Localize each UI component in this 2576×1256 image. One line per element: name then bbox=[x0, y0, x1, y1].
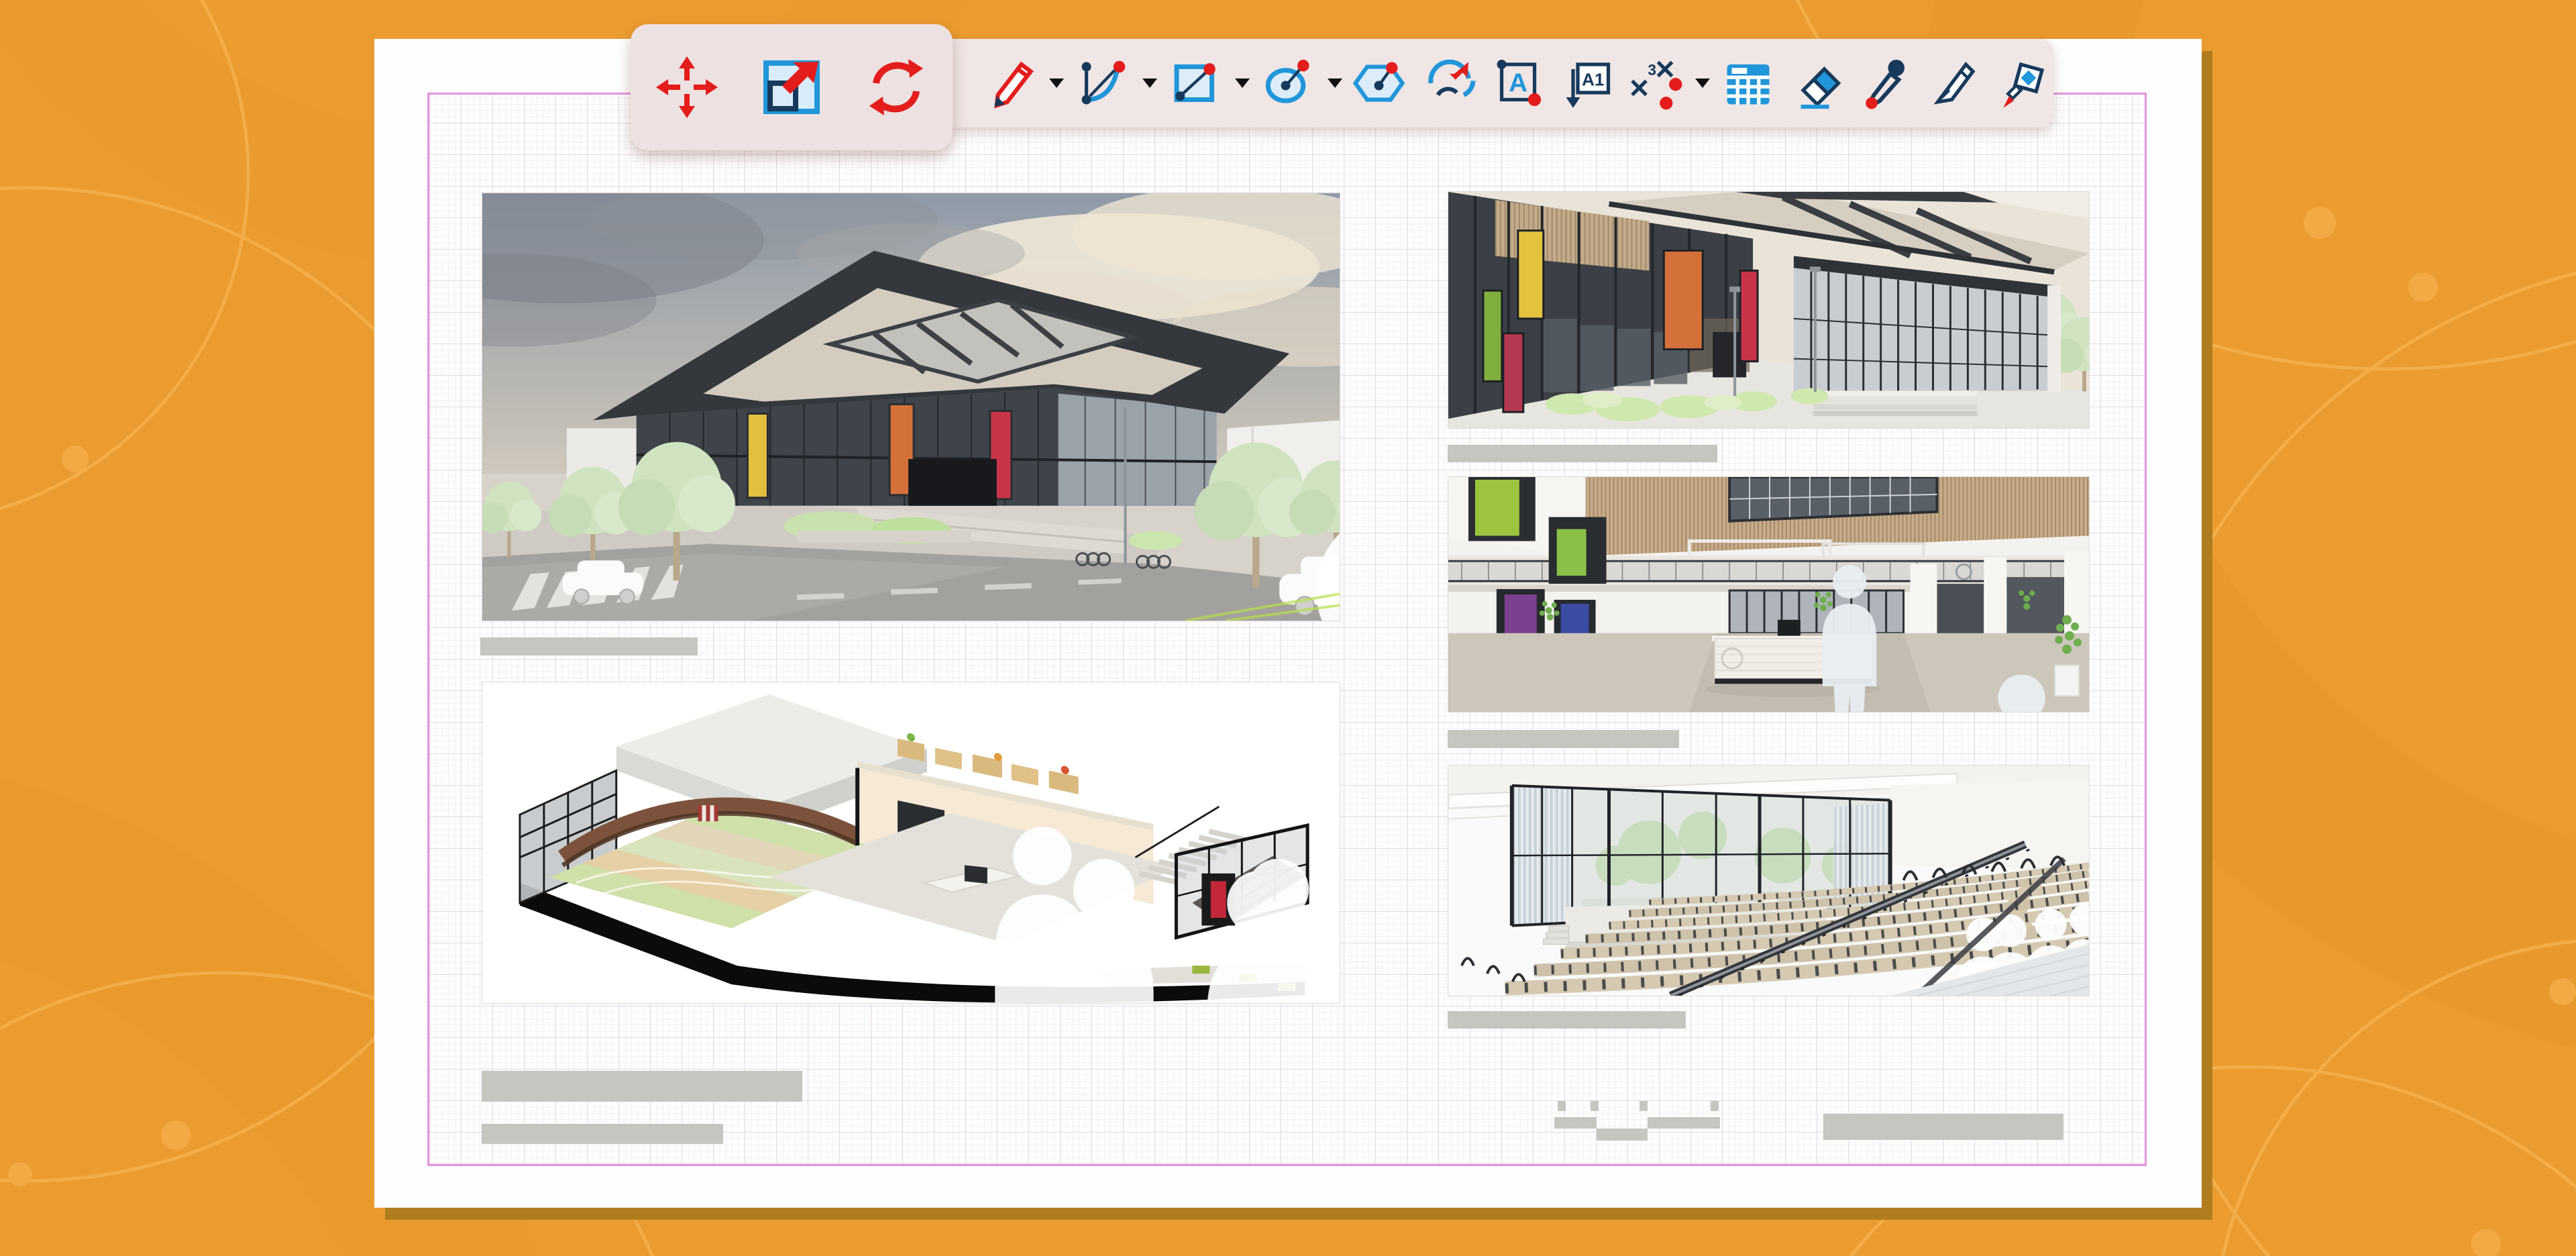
footer-text-bar[interactable] bbox=[1823, 1114, 2063, 1140]
text-icon: A bbox=[1490, 55, 1546, 111]
figure-exterior-street-render[interactable] bbox=[482, 193, 1340, 621]
ellipse-icon bbox=[1260, 55, 1316, 111]
dimension-dropdown-arrow[interactable] bbox=[1695, 78, 1710, 88]
figure-courtyard-render[interactable] bbox=[1448, 191, 2090, 429]
dimension-icon: 3 bbox=[1627, 55, 1684, 111]
caption-bar-auditorium[interactable] bbox=[1448, 1011, 1686, 1029]
figure-isometric-cutaway-render[interactable] bbox=[482, 682, 1340, 1004]
scale-segment-2 bbox=[1597, 1129, 1648, 1141]
move-icon bbox=[655, 55, 719, 119]
text-frame-tool-button[interactable]: A1 bbox=[1557, 48, 1617, 118]
move-tool-button[interactable] bbox=[651, 47, 723, 127]
desktop: A A1 3 bbox=[0, 0, 2576, 1256]
caption-bar-exterior[interactable] bbox=[480, 637, 698, 656]
polygon-icon bbox=[1353, 55, 1409, 111]
svg-text:A1: A1 bbox=[1582, 70, 1605, 90]
glue-icon bbox=[1995, 55, 2051, 111]
document-page bbox=[374, 39, 2202, 1208]
rectangle-icon bbox=[1167, 55, 1224, 111]
eraser-tool-button[interactable] bbox=[1787, 48, 1847, 118]
title-bar-primary[interactable] bbox=[482, 1071, 802, 1102]
pencil-tool-button[interactable] bbox=[979, 48, 1040, 118]
knife-icon bbox=[1926, 55, 1982, 111]
curve-icon bbox=[1075, 55, 1131, 111]
curve-dropdown-arrow[interactable] bbox=[1142, 78, 1157, 88]
figure-auditorium-render[interactable] bbox=[1448, 765, 2090, 996]
glue-tool-button[interactable] bbox=[1993, 48, 2053, 118]
svg-text:3: 3 bbox=[1648, 61, 1656, 78]
scale-segment-1 bbox=[1554, 1117, 1597, 1129]
text-tool-button[interactable]: A bbox=[1488, 48, 1548, 118]
resize-tool-button[interactable] bbox=[755, 47, 828, 127]
transform-toolbar-panel bbox=[631, 24, 953, 150]
scale-segment-3 bbox=[1648, 1117, 1720, 1129]
caption-bar-atrium[interactable] bbox=[1448, 730, 1679, 748]
table-tool-button[interactable] bbox=[1718, 48, 1778, 118]
resize-icon bbox=[759, 55, 824, 119]
scale-tick-2 bbox=[1591, 1101, 1599, 1111]
dimension-tool-button[interactable]: 3 bbox=[1625, 48, 1686, 118]
color-picker-tool-button[interactable] bbox=[1856, 48, 1916, 118]
arc-tool-button[interactable] bbox=[1419, 48, 1480, 118]
rotate-tool-button[interactable] bbox=[860, 47, 932, 127]
caption-bar-courtyard[interactable] bbox=[1448, 445, 1717, 462]
rectangle-dropdown-arrow[interactable] bbox=[1235, 78, 1250, 88]
scale-tick-4 bbox=[1711, 1101, 1719, 1111]
rectangle-tool-button[interactable] bbox=[1165, 48, 1226, 118]
arc-icon bbox=[1421, 55, 1478, 111]
table-icon bbox=[1720, 55, 1776, 111]
curve-tool-button[interactable] bbox=[1072, 48, 1132, 118]
scale-tick-3 bbox=[1640, 1101, 1648, 1111]
pencil-icon bbox=[981, 55, 1038, 111]
eraser-icon bbox=[1789, 55, 1845, 111]
svg-text:A: A bbox=[1509, 68, 1527, 97]
color-picker-icon bbox=[1858, 55, 1914, 111]
ellipse-tool-button[interactable] bbox=[1258, 48, 1318, 118]
text-frame-icon: A1 bbox=[1559, 55, 1615, 111]
ellipse-dropdown-arrow[interactable] bbox=[1328, 78, 1342, 88]
scale-tick-1 bbox=[1558, 1101, 1566, 1111]
knife-tool-button[interactable] bbox=[1924, 48, 1984, 118]
pencil-dropdown-arrow[interactable] bbox=[1049, 78, 1064, 88]
figure-atrium-render[interactable] bbox=[1448, 476, 2090, 713]
rotate-icon bbox=[864, 55, 928, 119]
title-bar-secondary[interactable] bbox=[482, 1124, 723, 1144]
polygon-tool-button[interactable] bbox=[1350, 48, 1411, 118]
